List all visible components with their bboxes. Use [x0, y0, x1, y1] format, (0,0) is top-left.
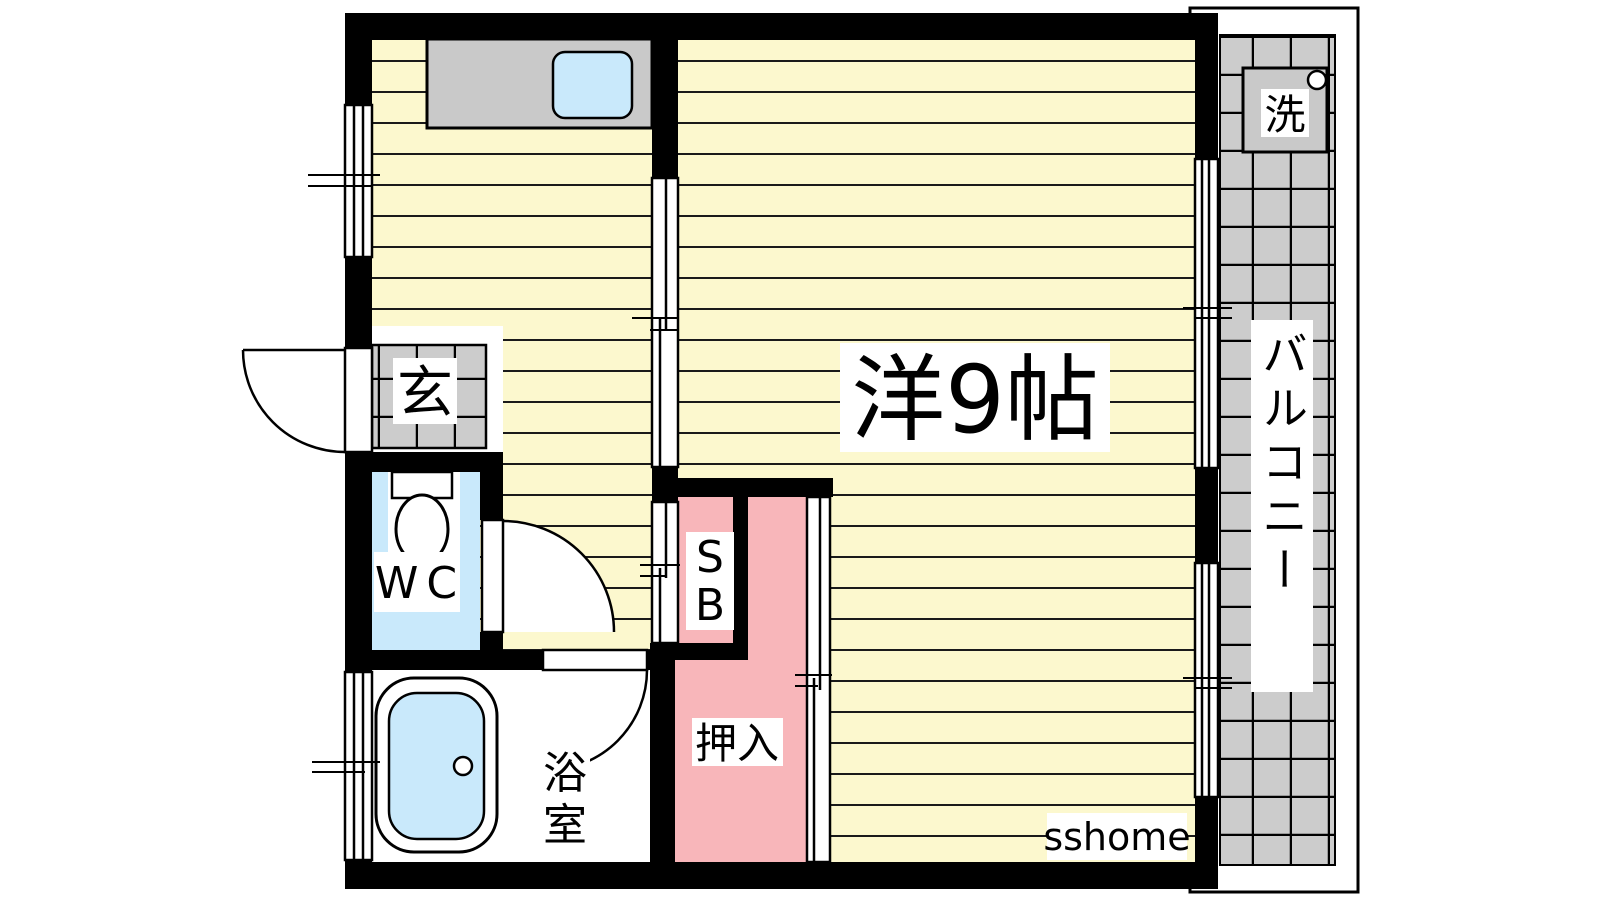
wall-right-2 — [1195, 468, 1218, 563]
storage-box-label-line1: S — [696, 532, 724, 583]
window-frame — [1195, 563, 1218, 797]
storage-box-label-line2: B — [695, 580, 725, 631]
bathtub-drain-icon — [454, 757, 472, 775]
wall-top — [345, 13, 1218, 40]
door-opening — [345, 348, 372, 452]
washer-faucet-icon — [1308, 71, 1326, 89]
washer-label: 洗 — [1265, 91, 1306, 139]
wall-left-2 — [345, 257, 372, 348]
main-room-label: 洋9帖 — [851, 346, 1099, 455]
wc-label: WC — [375, 558, 465, 609]
wall-left-1 — [345, 13, 372, 105]
bathroom-label-line1: 浴 — [543, 748, 587, 799]
wall-right-1 — [1195, 13, 1218, 159]
window-frame — [1195, 159, 1218, 468]
wall-bath-north — [345, 650, 543, 670]
wall-wc-right-1 — [480, 467, 503, 520]
window-bath-west — [312, 672, 380, 860]
wall-right-3 — [1195, 797, 1218, 862]
wall-closet-left — [650, 650, 675, 862]
entrance-door — [243, 348, 372, 452]
wall-bottom — [345, 862, 1218, 889]
window-kitchen-west — [308, 105, 380, 257]
wall-divider-top — [652, 40, 678, 178]
door-leaf — [543, 650, 647, 670]
entrance-label: 玄 — [397, 361, 453, 426]
window-frame — [345, 105, 372, 257]
kitchen-sink-icon — [553, 52, 632, 118]
wall-bath-ne — [647, 650, 675, 670]
bathroom-label-line2: 室 — [543, 800, 587, 851]
wall-wc-right-2 — [480, 632, 503, 650]
closet-label: 押入 — [695, 719, 779, 768]
wall-left-3 — [345, 450, 372, 672]
wall-left-4 — [345, 860, 372, 889]
watermark-text: sshome — [1043, 815, 1190, 859]
wall-sb-right — [733, 478, 748, 660]
floor-plan: 洗 バルコニー — [0, 0, 1600, 900]
sliding-frame — [807, 497, 830, 862]
door-swing-arc — [243, 350, 345, 452]
balcony-label: バルコニー — [1255, 330, 1309, 600]
door-leaf — [482, 520, 503, 632]
floor-plan-svg: 洗 バルコニー — [0, 0, 1600, 900]
window-frame — [345, 672, 372, 860]
